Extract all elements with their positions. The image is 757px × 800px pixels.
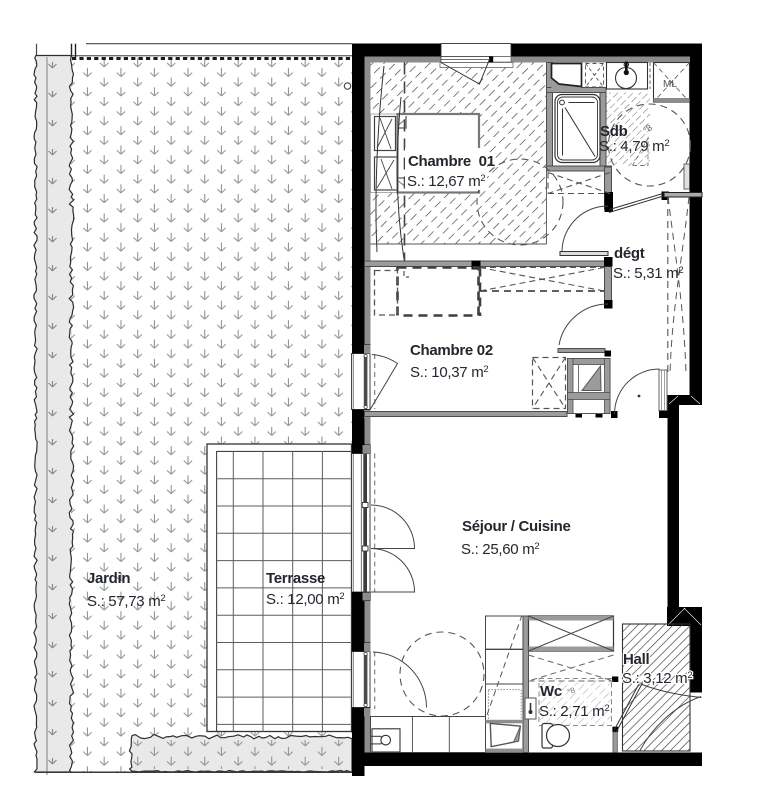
svg-text:S.: 12,67 m2: S.: 12,67 m2: [407, 173, 485, 190]
svg-text:dégt: dégt: [614, 245, 645, 262]
svg-text:S.: 5,31 m2: S.: 5,31 m2: [613, 265, 683, 282]
svg-text:S.: 4,79 m2: S.: 4,79 m2: [599, 138, 669, 155]
svg-text:Hall: Hall: [623, 651, 649, 668]
svg-text:S.: 57,73 m2: S.: 57,73 m2: [87, 593, 165, 610]
svg-text:Jardin: Jardin: [87, 570, 130, 587]
svg-text:Terrasse: Terrasse: [266, 570, 325, 587]
svg-text:S.: 2,71 m2: S.: 2,71 m2: [539, 703, 609, 720]
svg-text:S.: 12,00 m2: S.: 12,00 m2: [266, 591, 344, 608]
svg-text:S.: 3,12 m2: S.: 3,12 m2: [622, 670, 692, 687]
svg-text:S.: 25,60 m2: S.: 25,60 m2: [461, 541, 539, 558]
svg-text:Chambre 02: Chambre 02: [410, 342, 493, 359]
svg-text:Séjour / Cuisine: Séjour / Cuisine: [462, 518, 571, 535]
svg-text:S.: 10,37 m2: S.: 10,37 m2: [410, 364, 488, 381]
svg-text:Chambre 01: Chambre 01: [408, 153, 495, 170]
svg-text:ML: ML: [663, 79, 677, 90]
svg-text:Wc: Wc: [540, 683, 562, 700]
